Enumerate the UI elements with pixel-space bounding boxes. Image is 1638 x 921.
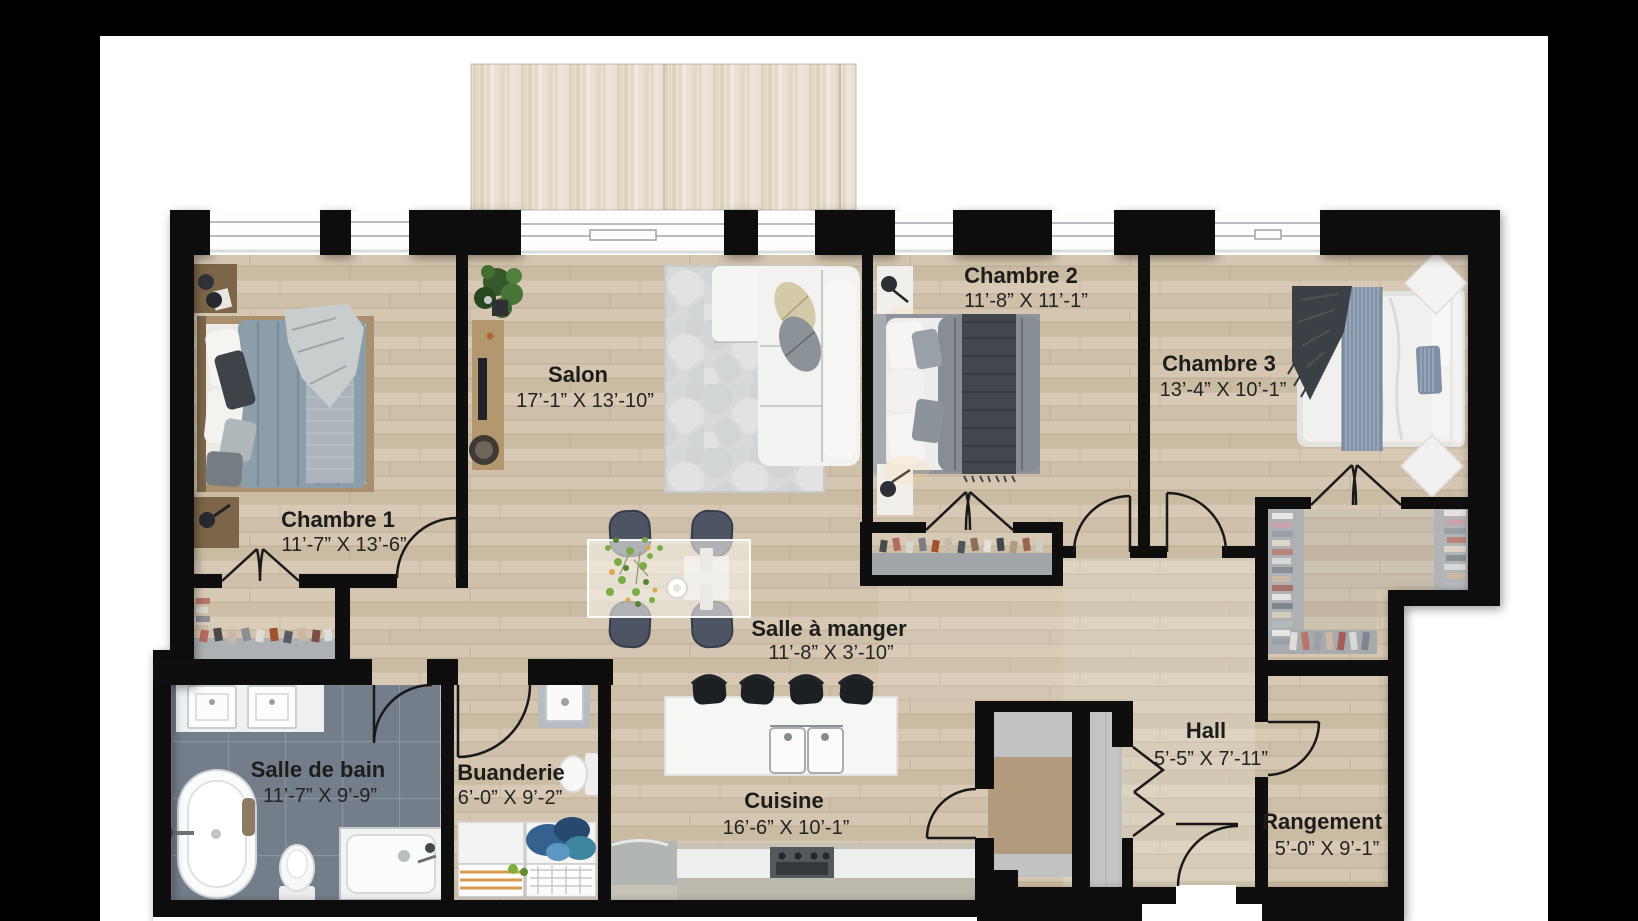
svg-text:Cuisine: Cuisine (744, 788, 823, 813)
svg-text:Chambre 3: Chambre 3 (1162, 351, 1276, 376)
svg-text:5’-0” X 9’-1”: 5’-0” X 9’-1” (1275, 838, 1379, 860)
svg-text:Salon: Salon (548, 362, 608, 387)
svg-text:Chambre 1: Chambre 1 (281, 507, 395, 532)
svg-text:Salle à manger: Salle à manger (751, 616, 907, 641)
svg-text:11’-8” X 3’-10”: 11’-8” X 3’-10” (768, 642, 893, 664)
svg-text:Rangement: Rangement (1262, 809, 1382, 834)
svg-text:Salle de bain: Salle de bain (251, 757, 386, 782)
svg-text:Chambre 2: Chambre 2 (964, 263, 1078, 288)
svg-text:5’-5” X 7’-11”: 5’-5” X 7’-11” (1154, 748, 1268, 770)
svg-text:11’-7” X 13’-6”: 11’-7” X 13’-6” (281, 534, 406, 556)
svg-text:13’-4” X 10’-1”: 13’-4” X 10’-1” (1160, 379, 1287, 401)
svg-text:17’-1” X 13’-10”: 17’-1” X 13’-10” (516, 390, 654, 412)
svg-text:6’-0” X 9’-2”: 6’-0” X 9’-2” (458, 787, 562, 809)
svg-text:11’-7” X 9’-9”: 11’-7” X 9’-9” (263, 785, 377, 807)
svg-text:16’-6” X 10’-1”: 16’-6” X 10’-1” (723, 817, 850, 839)
svg-text:Buanderie: Buanderie (457, 760, 565, 785)
svg-text:Hall: Hall (1186, 718, 1226, 743)
svg-text:11’-8” X 11’-1”: 11’-8” X 11’-1” (964, 290, 1088, 312)
